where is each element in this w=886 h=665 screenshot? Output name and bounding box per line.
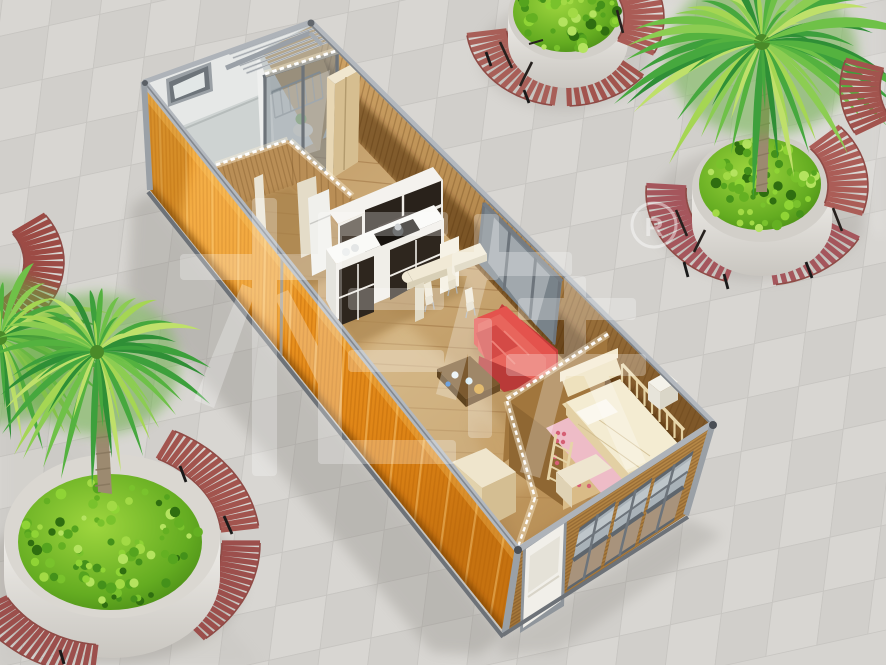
svg-text:R: R xyxy=(645,212,664,242)
